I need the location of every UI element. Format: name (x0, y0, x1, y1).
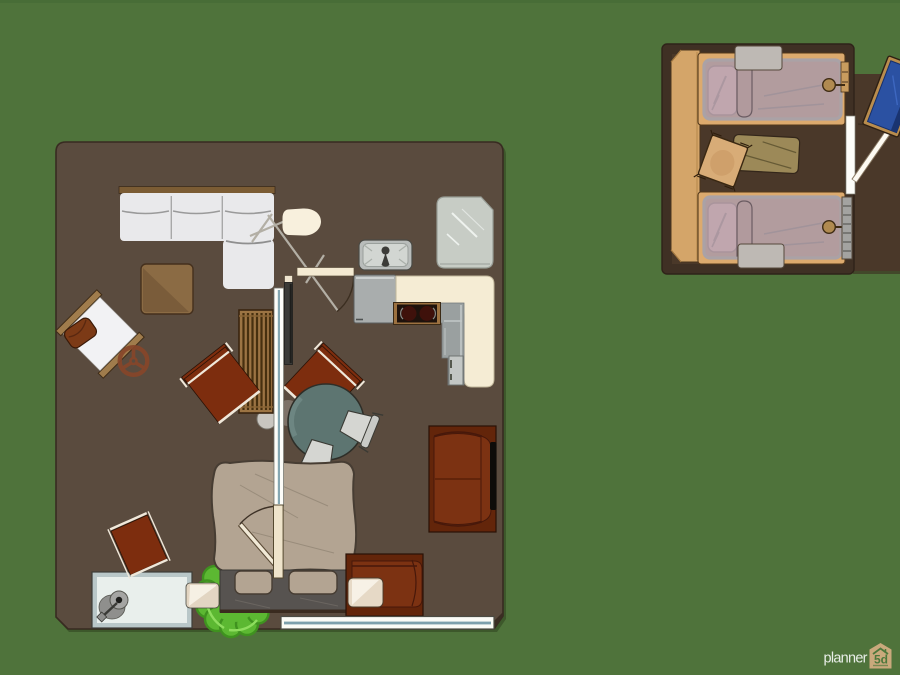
svg-text:5d: 5d (874, 653, 888, 667)
svg-text:planner: planner (824, 651, 868, 667)
